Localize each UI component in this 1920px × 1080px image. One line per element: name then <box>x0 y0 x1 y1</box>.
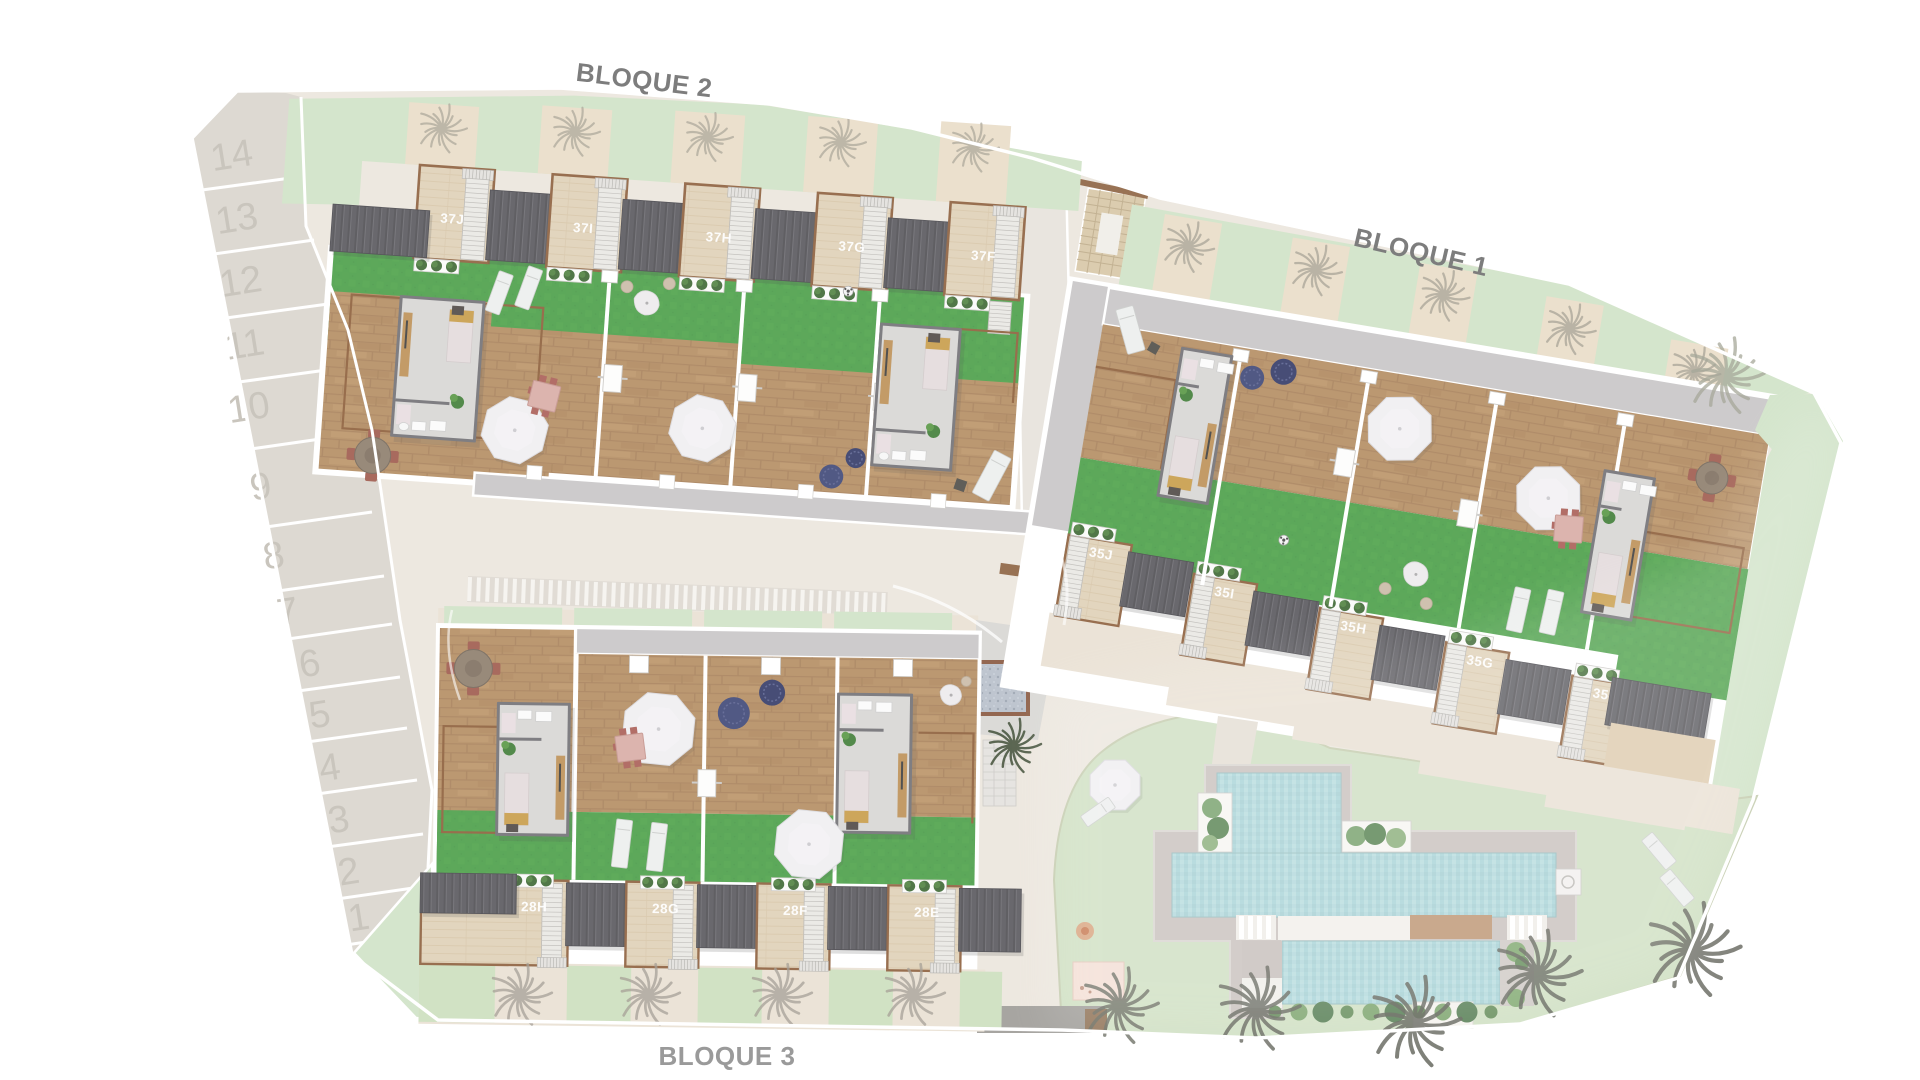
svg-text:BLOQUE 3: BLOQUE 3 <box>659 1041 796 1071</box>
